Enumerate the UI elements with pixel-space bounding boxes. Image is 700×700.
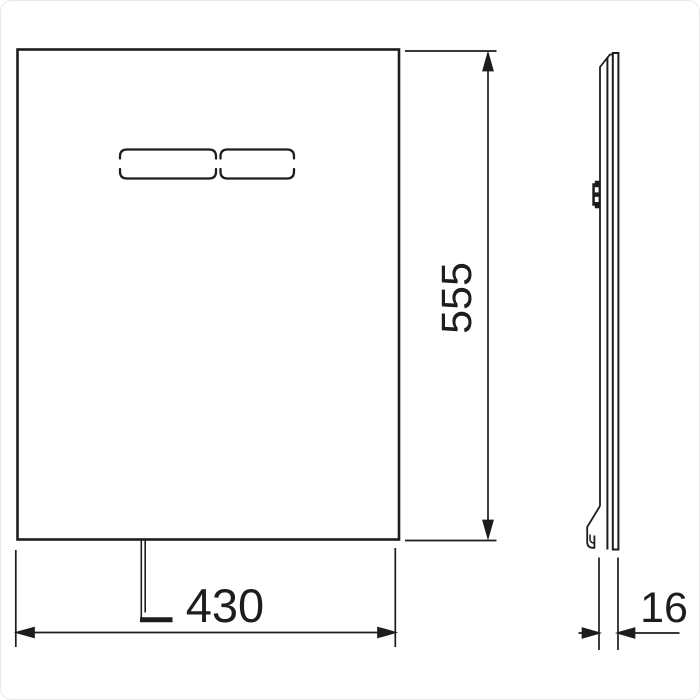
width-arrow-left	[17, 628, 34, 638]
depth-dimension-label: 16	[636, 586, 692, 630]
mounting-clip	[593, 182, 600, 208]
side-view	[587, 53, 618, 550]
front-view-outline	[18, 50, 400, 540]
front-view	[18, 50, 400, 620]
width-dimension-label: 430	[181, 582, 269, 630]
height-dimension-label: 555	[434, 240, 480, 356]
side-view-bottom-hook	[587, 506, 600, 548]
depth-arrow-left	[583, 628, 600, 637]
height-arrow-down	[483, 521, 493, 538]
height-arrow-up	[483, 54, 493, 71]
drawing-linework	[1, 1, 700, 700]
technical-drawing-canvas: 430 555 16	[0, 0, 700, 700]
side-view-rear-rail	[613, 53, 619, 550]
drain-hook	[140, 541, 173, 620]
width-arrow-right	[378, 628, 395, 638]
depth-arrow-right	[618, 628, 635, 637]
